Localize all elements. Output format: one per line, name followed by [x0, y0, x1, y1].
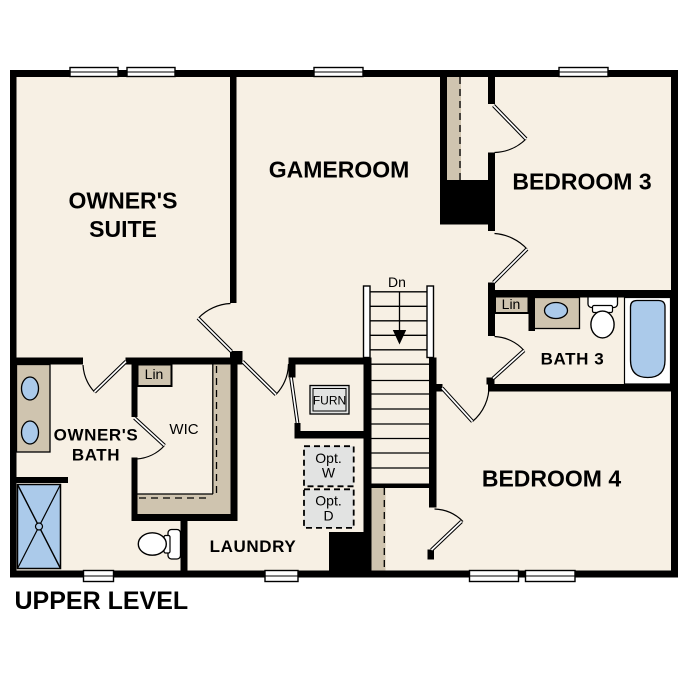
svg-text:Dn: Dn	[388, 274, 406, 290]
svg-text:WIC: WIC	[169, 421, 198, 438]
svg-text:Lin: Lin	[502, 296, 521, 312]
svg-text:OWNER'S: OWNER'S	[69, 188, 178, 214]
svg-text:BEDROOM 4: BEDROOM 4	[482, 466, 622, 492]
svg-text:Lin: Lin	[145, 366, 164, 382]
svg-text:BATH: BATH	[72, 446, 120, 465]
svg-text:OWNER'S: OWNER'S	[54, 426, 139, 445]
svg-text:LAUNDRY: LAUNDRY	[210, 537, 297, 556]
svg-text:W: W	[322, 465, 336, 481]
svg-text:UPPER LEVEL: UPPER LEVEL	[15, 587, 189, 615]
svg-text:BEDROOM 3: BEDROOM 3	[512, 169, 651, 195]
svg-text:Opt.: Opt.	[315, 493, 341, 509]
svg-text:BATH 3: BATH 3	[541, 350, 605, 369]
svg-text:FURN: FURN	[313, 394, 346, 408]
svg-text:GAMEROOM: GAMEROOM	[269, 157, 410, 183]
svg-text:SUITE: SUITE	[89, 216, 157, 242]
svg-text:D: D	[323, 508, 333, 524]
